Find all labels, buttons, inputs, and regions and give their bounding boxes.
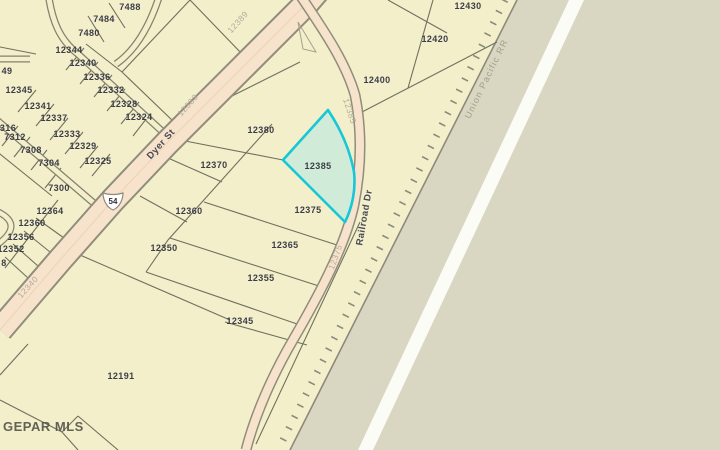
parcel-map-canvas: 54 7488748474801234412340123361233212328…: [0, 0, 720, 450]
parcel-label-12430: 12430: [454, 1, 481, 11]
parcel-label-12329: 12329: [69, 141, 96, 151]
parcel-label-7488: 7488: [119, 2, 141, 12]
parcel-label-7300: 7300: [48, 183, 70, 193]
route-shield-number: 54: [109, 197, 118, 206]
parcel-label-7308: 7308: [20, 145, 42, 155]
parcel-label-12400: 12400: [363, 75, 390, 85]
gepar-mls-watermark: GEPAR MLS: [3, 419, 84, 434]
parcel-label-12340: 12340: [69, 58, 96, 68]
parcel-label-12191: 12191: [107, 371, 134, 381]
parcel-label-12356: 12356: [7, 232, 34, 242]
parcel-label-12325: 12325: [84, 156, 111, 166]
parcel-label-8: 8: [1, 258, 6, 268]
parcel-label-12336: 12336: [83, 72, 110, 82]
parcel-label-12375: 12375: [294, 205, 321, 215]
parcel-label-12355: 12355: [247, 273, 274, 283]
parcel-label-12332: 12332: [97, 85, 124, 95]
parcel-label-7304: 7304: [38, 158, 60, 168]
parcel-label-12365: 12365: [271, 240, 298, 250]
parcel-label-7480: 7480: [78, 28, 100, 38]
parcel-label-12420: 12420: [421, 34, 448, 44]
parcel-label-7312: 7312: [4, 132, 26, 142]
parcel-label-12344: 12344: [55, 45, 82, 55]
parcel-label-12324: 12324: [125, 112, 152, 122]
parcel-label-12370: 12370: [200, 160, 227, 170]
parcel-label-12364: 12364: [36, 206, 63, 216]
parcel-label-12337: 12337: [40, 113, 67, 123]
parcel-label-49: 49: [2, 66, 13, 76]
parcel-label-12350: 12350: [150, 243, 177, 253]
parcel-label-12345: 12345: [226, 316, 253, 326]
parcel-label-7484: 7484: [93, 14, 115, 24]
parcel-label-12345: 12345: [5, 85, 32, 95]
parcel-label-12380: 12380: [247, 125, 274, 135]
parcel-label-12328: 12328: [110, 99, 137, 109]
parcel-label-12360: 12360: [175, 206, 202, 216]
parcel-label-12385: 12385: [304, 161, 331, 171]
parcel-label-12333: 12333: [53, 129, 80, 139]
mls-parcel-map: 54 7488748474801234412340123361233212328…: [0, 0, 720, 450]
parcel-label-12360: 12360: [18, 218, 45, 228]
parcel-label-12341: 12341: [24, 101, 51, 111]
parcel-label-12352: 12352: [0, 244, 25, 254]
